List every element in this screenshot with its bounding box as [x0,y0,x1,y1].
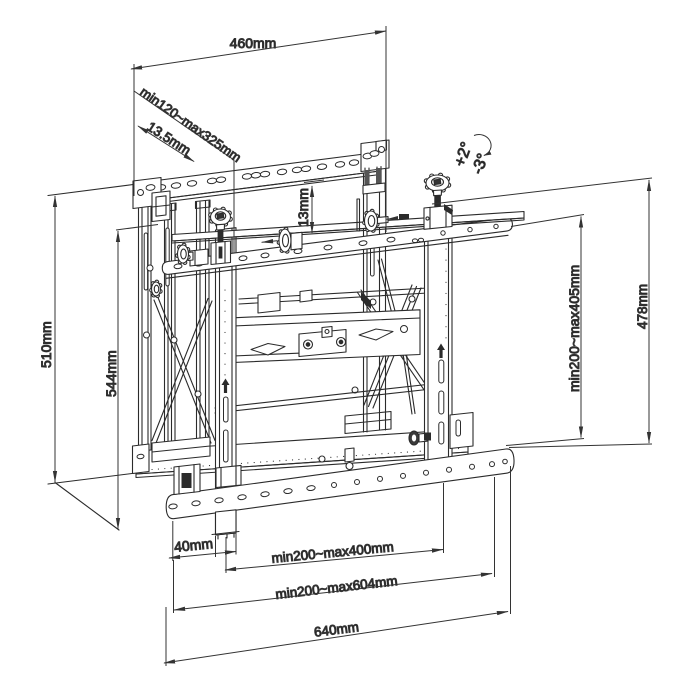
svg-text:510mm: 510mm [38,321,54,368]
svg-text:478mm: 478mm [635,284,650,329]
svg-text:460mm: 460mm [230,35,277,51]
svg-text:13mm: 13mm [295,188,311,227]
svg-text:min200~max405mm: min200~max405mm [566,265,582,392]
svg-text:544mm: 544mm [103,350,119,397]
